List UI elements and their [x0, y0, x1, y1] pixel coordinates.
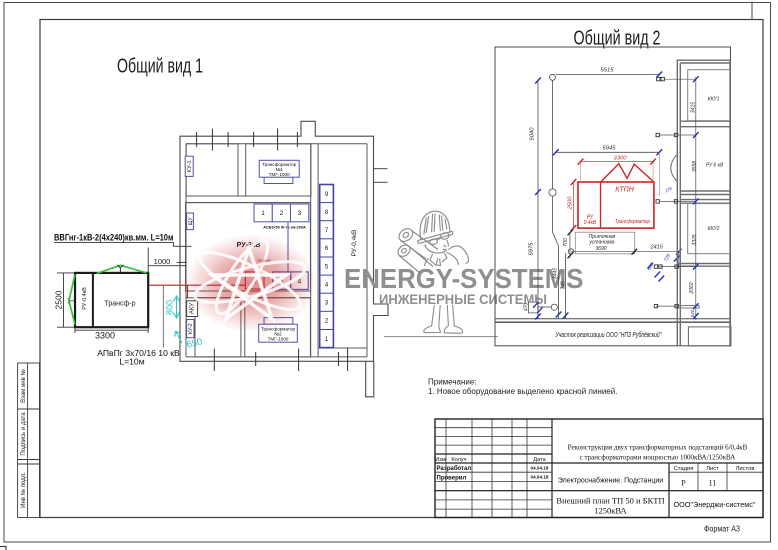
svg-text:Взам инв №: Взам инв №: [20, 369, 27, 403]
svg-text:5945: 5945: [603, 146, 617, 152]
svg-text:800: 800: [165, 300, 175, 315]
svg-text:04.04.18: 04.04.18: [531, 466, 549, 471]
svg-text:ТМГ-1000: ТМГ-1000: [269, 172, 290, 177]
svg-text:Разработал: Разработал: [437, 465, 472, 472]
svg-text:Энерджи: Энерджи: [257, 259, 271, 263]
svg-text:ТМГ-1000: ТМГ-1000: [268, 336, 289, 341]
svg-text:Подпись и дата: Подпись и дата: [21, 412, 27, 456]
svg-text:1: 1: [261, 210, 265, 217]
svg-text:ENERGY-SYSTEMS: ENERGY-SYSTEMS: [344, 263, 584, 294]
svg-text:АСБ3х50 Ж-та 3ж-200А: АСБ3х50 Ж-та 3ж-200А: [263, 226, 306, 230]
svg-text:ВВГнг-1кВ-2(4х240)кв.мм. L=10: ВВГнг-1кВ-2(4х240)кв.мм. L=10м: [54, 232, 174, 243]
svg-text:Общий вид 1: Общий вид 1: [117, 56, 203, 78]
svg-text:ЩУ: ЩУ: [188, 217, 194, 226]
svg-text:1250кВА: 1250кВА: [594, 506, 627, 516]
svg-text:2060: 2060: [689, 282, 695, 294]
svg-text:Внешний план ТП 50 и БКТП: Внешний план ТП 50 и БКТП: [556, 496, 664, 506]
svg-text:Реконструкция двух трансформат: Реконструкция двух трансформаторных подс…: [568, 444, 748, 452]
svg-text:3558: 3558: [692, 161, 698, 172]
svg-text:L=10м: L=10м: [119, 357, 144, 367]
svg-text:КТПН: КТПН: [615, 187, 634, 194]
svg-text:Дата: Дата: [533, 457, 546, 463]
svg-text:Примечание:: Примечание:: [428, 378, 477, 387]
svg-text:Трансф-р: Трансф-р: [104, 301, 135, 308]
svg-text:5040: 5040: [530, 127, 536, 141]
svg-text:КУ-2: КУ-2: [188, 323, 194, 334]
svg-text:3300: 3300: [95, 331, 115, 341]
svg-text:3325: 3325: [692, 234, 698, 245]
svg-text:11: 11: [709, 479, 717, 488]
svg-text:1. Новое оборудование выделено: 1. Новое оборудование выделено красной л…: [428, 387, 617, 396]
svg-text:745: 745: [561, 281, 567, 290]
svg-text:ООО"Энерджи-системс": ООО"Энерджи-системс": [674, 500, 756, 509]
svg-text:КУ-1: КУ-1: [187, 160, 193, 172]
svg-text:Электроснабжение. Подстанции: Электроснабжение. Подстанции: [558, 477, 663, 485]
svg-text:РУ 6 кВ: РУ 6 кВ: [706, 163, 724, 169]
svg-text:470: 470: [523, 303, 529, 312]
svg-text:04.04.18: 04.04.18: [531, 475, 549, 480]
svg-text:Р: Р: [681, 479, 686, 488]
svg-text:5975: 5975: [529, 242, 535, 256]
svg-text:3415: 3415: [691, 102, 697, 113]
svg-text:ККУ2: ККУ2: [708, 226, 720, 232]
svg-text:2500: 2500: [54, 290, 64, 309]
svg-text:5515: 5515: [601, 68, 615, 74]
svg-text:700: 700: [563, 238, 569, 247]
svg-text:РУ-0,4кВ: РУ-0,4кВ: [351, 230, 358, 257]
svg-text:3690: 3690: [595, 246, 606, 252]
svg-text:Проверил: Проверил: [437, 475, 467, 481]
svg-text:1000: 1000: [154, 257, 171, 266]
svg-text:установка: установка: [588, 240, 614, 246]
svg-text:3300: 3300: [614, 155, 628, 161]
svg-text:2415: 2415: [650, 245, 664, 251]
svg-text:ИНЖЕНЕРНЫЕ СИСТЕМЫ: ИНЖЕНЕРНЫЕ СИСТЕМЫ: [379, 292, 547, 308]
svg-text:Формат А3: Формат А3: [704, 525, 740, 534]
svg-text:Трансформатор: Трансформатор: [615, 219, 650, 225]
svg-text:0,4кВ: 0,4кВ: [584, 220, 597, 226]
svg-text:Участок реализации ООО "НПЗ Р: Участок реализации ООО "НПЗ Рублёвский": [555, 330, 662, 339]
svg-text:640: 640: [690, 309, 695, 317]
svg-text:3445: 3445: [553, 268, 559, 279]
svg-text:Общий вид 2: Общий вид 2: [574, 28, 661, 50]
svg-text:Лист: Лист: [706, 466, 719, 472]
svg-text:ККУ1: ККУ1: [708, 97, 720, 103]
svg-text:РУ-0,4кВ: РУ-0,4кВ: [82, 287, 88, 310]
svg-text:Листов: Листов: [736, 466, 755, 472]
svg-text:Инв № подл.: Инв № подл.: [20, 472, 27, 508]
svg-text:Изм: Изм: [435, 457, 446, 463]
svg-text:Колуч: Колуч: [451, 457, 466, 463]
svg-text:с трансформаторами мощностью 1: с трансформаторами мощностью 1000кВА/125…: [580, 454, 736, 462]
svg-text:2500: 2500: [568, 196, 574, 211]
svg-text:3: 3: [298, 210, 302, 217]
svg-text:2: 2: [280, 210, 284, 217]
svg-text:Стадия: Стадия: [674, 466, 694, 472]
